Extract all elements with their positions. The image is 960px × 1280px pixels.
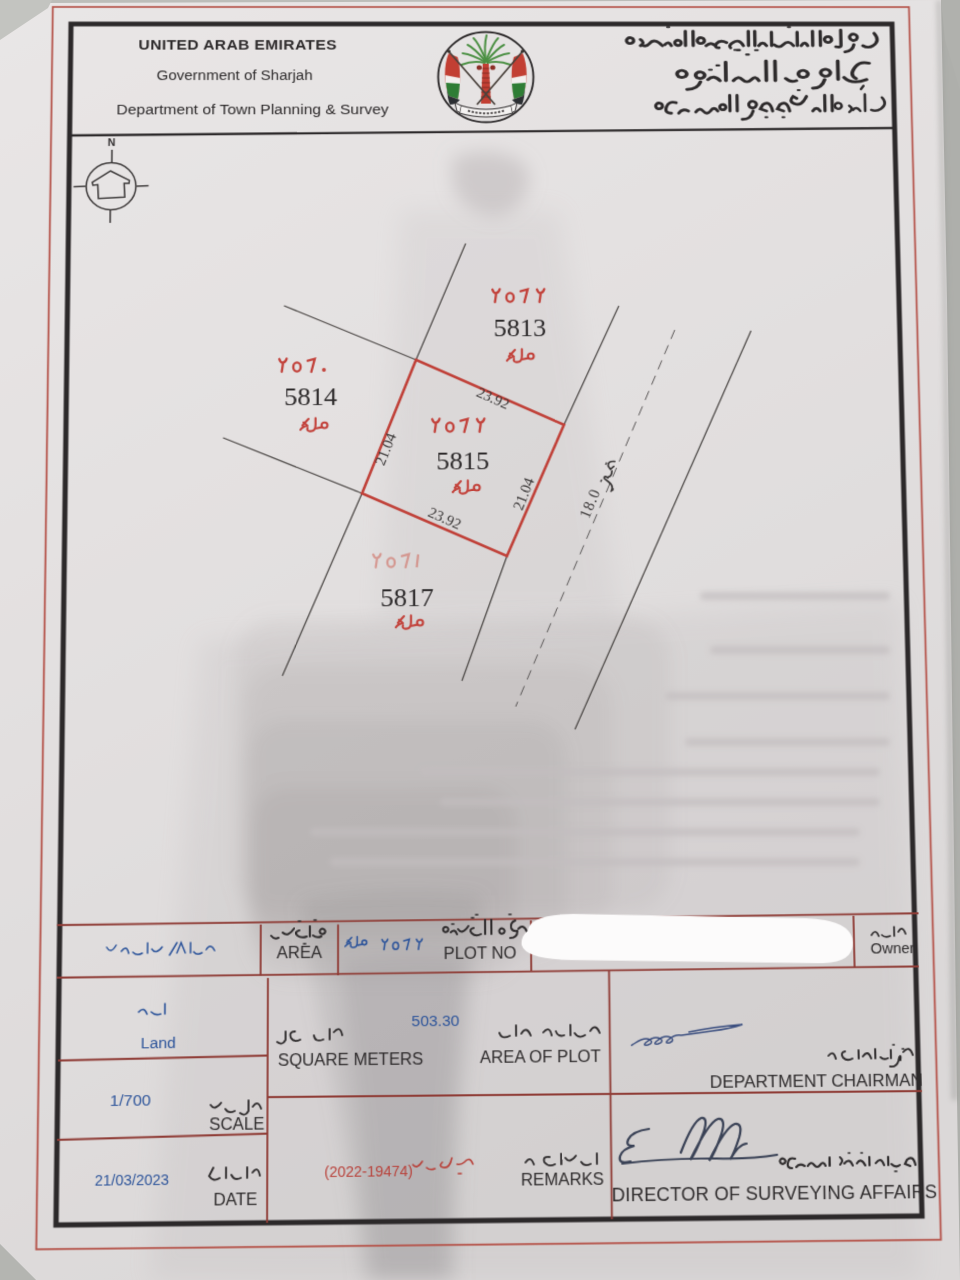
svg-text:Land: Land — [141, 1035, 176, 1052]
svg-text:5815: 5815 — [436, 447, 489, 475]
svg-text:DATE: DATE — [213, 1191, 257, 1210]
svg-text:PLOT NO: PLOT NO — [444, 945, 517, 963]
svg-text:5813: 5813 — [493, 314, 546, 342]
svg-text:5817: 5817 — [380, 584, 433, 613]
svg-text:1/700: 1/700 — [110, 1092, 151, 1111]
svg-text:DEPARTMENT CHAIRMAN: DEPARTMENT CHAIRMAN — [710, 1071, 923, 1092]
svg-text:AREA OF PLOT: AREA OF PLOT — [480, 1048, 601, 1067]
svg-text:21/03/2023: 21/03/2023 — [95, 1172, 169, 1189]
svg-text:N: N — [108, 138, 116, 149]
svg-text:REMARKS: REMARKS — [521, 1171, 604, 1190]
svg-text:SQUARE METERS: SQUARE METERS — [278, 1051, 423, 1070]
svg-text:UNITED ARAB EMIRATES: UNITED ARAB EMIRATES — [139, 37, 337, 54]
svg-text:SCALE: SCALE — [209, 1116, 264, 1135]
svg-text:503.30: 503.30 — [411, 1013, 459, 1030]
svg-text:Department of Town Planning &: Department of Town Planning & Survey — [116, 102, 389, 119]
svg-text:18.0: 18.0 — [576, 486, 604, 521]
svg-text:AREA: AREA — [277, 944, 323, 962]
svg-text:Government of Sharjah: Government of Sharjah — [157, 68, 313, 84]
svg-text:DIRECTOR OF SURVEYING AFFAIRS: DIRECTOR OF SURVEYING AFFAIRS — [612, 1182, 938, 1206]
svg-text:(2022-19474): (2022-19474) — [324, 1163, 413, 1180]
svg-text:21.04: 21.04 — [372, 430, 400, 467]
svg-text:23.92: 23.92 — [474, 385, 512, 413]
svg-text:5814: 5814 — [284, 383, 337, 411]
svg-text:Owner: Owner — [870, 941, 915, 958]
